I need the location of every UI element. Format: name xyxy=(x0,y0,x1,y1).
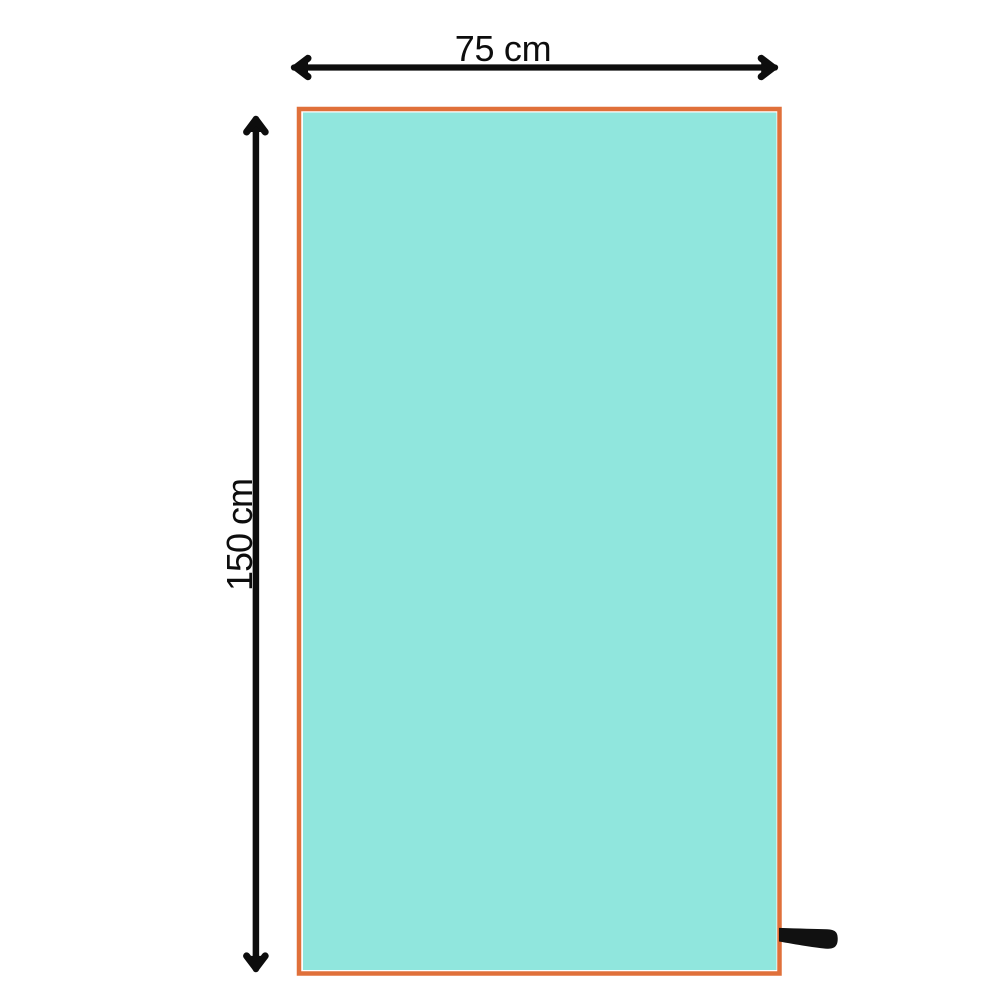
svg-text:75 cm: 75 cm xyxy=(455,28,552,69)
svg-text:150 cm: 150 cm xyxy=(219,479,260,591)
